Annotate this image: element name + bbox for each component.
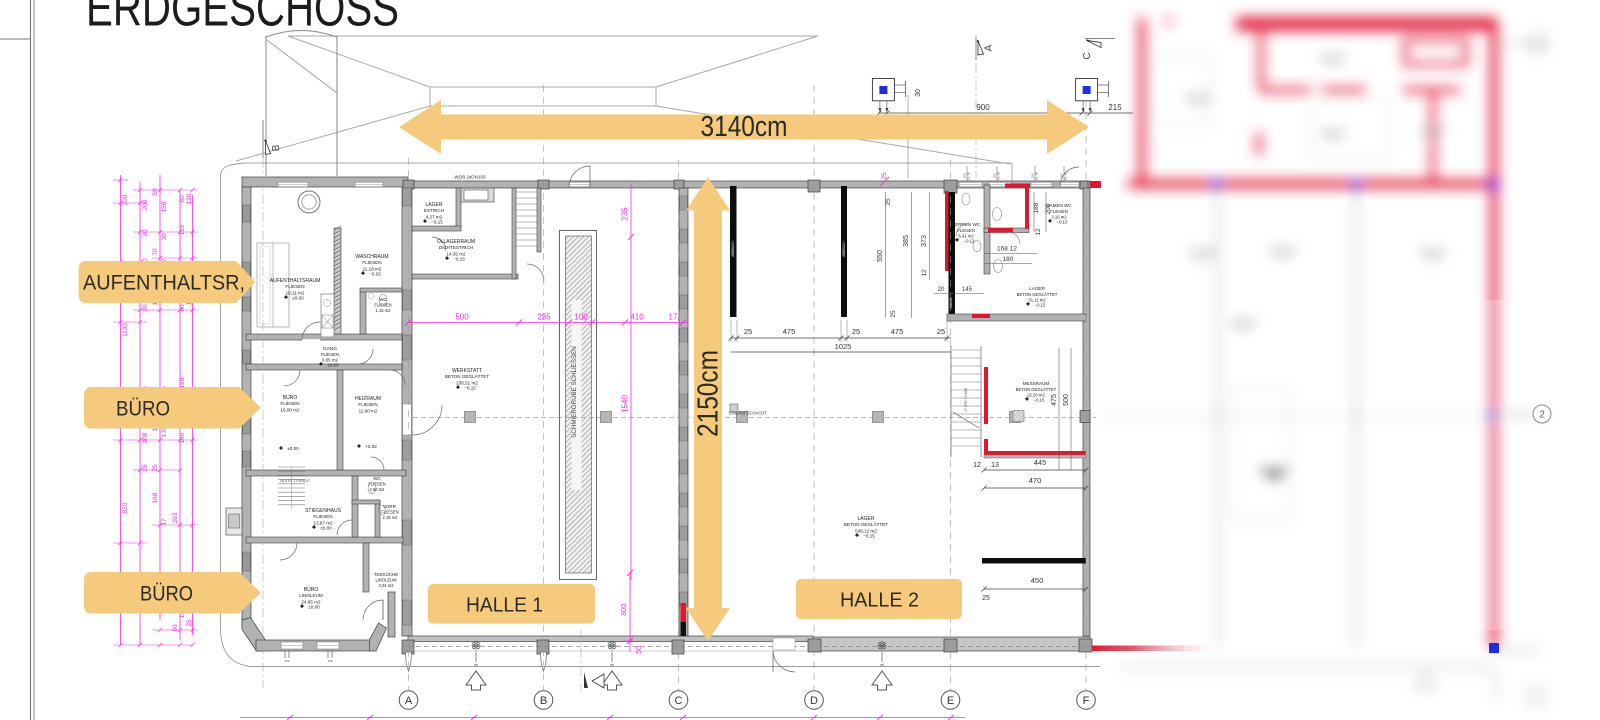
svg-text:470: 470 <box>1029 476 1042 485</box>
svg-text:385: 385 <box>903 235 910 247</box>
svg-text:STIEGENHAUS: STIEGENHAUS <box>305 508 342 514</box>
svg-text:BÜRO: BÜRO <box>304 586 319 593</box>
svg-text:12: 12 <box>921 269 928 277</box>
svg-text:+0,02: +0,02 <box>365 444 377 449</box>
svg-text:FLIESEN: FLIESEN <box>381 510 398 515</box>
svg-text:−0,13: −0,13 <box>964 238 975 243</box>
svg-text:1130: 1130 <box>122 323 129 337</box>
svg-text:3,04 m2: 3,04 m2 <box>379 583 395 588</box>
svg-text:BETON GEGLÄTTET: BETON GEGLÄTTET <box>1016 387 1057 392</box>
svg-text:150: 150 <box>161 201 168 212</box>
svg-text:FLIESEN: FLIESEN <box>285 284 304 289</box>
svg-text:A: A <box>984 44 995 51</box>
svg-text:16,00 m2: 16,00 m2 <box>280 407 300 412</box>
svg-text:WC: WC <box>379 297 387 302</box>
svg-text:E: E <box>947 695 954 707</box>
svg-text:25: 25 <box>186 619 193 627</box>
svg-text:HALLE 1: HALLE 1 <box>466 593 543 616</box>
svg-text:12: 12 <box>973 462 981 469</box>
svg-text:30: 30 <box>142 229 149 237</box>
svg-text:WC: WC <box>373 476 381 481</box>
svg-text:2150cm: 2150cm <box>693 350 725 437</box>
svg-text:OL 90: OL 90 <box>997 172 1001 180</box>
svg-text:FLIESEN: FLIESEN <box>362 260 381 265</box>
svg-text:70: 70 <box>152 248 159 256</box>
svg-text:500: 500 <box>1063 394 1070 406</box>
svg-text:1025: 1025 <box>835 342 852 351</box>
svg-text:FLIESEN: FLIESEN <box>1050 209 1068 214</box>
svg-text:308: 308 <box>142 432 149 443</box>
svg-text:EINLAUFSCHACHT: EINLAUFSCHACHT <box>729 411 767 416</box>
svg-text:12: 12 <box>1035 228 1042 236</box>
svg-text:LINOLEUM: LINOLEUM <box>375 578 397 583</box>
svg-text:17: 17 <box>161 518 168 526</box>
svg-text:150: 150 <box>284 659 289 663</box>
svg-text:FLIESEN: FLIESEN <box>280 401 299 406</box>
svg-text:60: 60 <box>172 624 179 632</box>
svg-text:ABBRUCH: ABBRUCH <box>842 241 846 257</box>
svg-text:DICHTESTRICH: DICHTESTRICH <box>439 245 473 250</box>
svg-text:17 STG 17,5/25: 17 STG 17,5/25 <box>964 388 968 412</box>
svg-text:VORR.: VORR. <box>383 504 397 509</box>
svg-text:80: 80 <box>179 195 186 203</box>
svg-text:445: 445 <box>1034 458 1047 467</box>
svg-text:BETON GEGLÄTTET: BETON GEGLÄTTET <box>445 373 490 379</box>
svg-text:3140cm: 3140cm <box>701 111 788 143</box>
svg-text:DAMEN WC: DAMEN WC <box>1046 203 1072 208</box>
svg-text:900: 900 <box>976 103 990 112</box>
svg-text:−0,15: −0,15 <box>464 386 476 391</box>
svg-text:300: 300 <box>619 604 628 617</box>
svg-text:BETON GEGLÄTTET: BETON GEGLÄTTET <box>1017 292 1058 297</box>
svg-text:235: 235 <box>621 207 630 221</box>
svg-text:OL 90: OL 90 <box>1035 172 1039 180</box>
svg-text:OL 90: OL 90 <box>967 172 971 180</box>
svg-text:25: 25 <box>142 464 149 472</box>
svg-text:820: 820 <box>122 502 129 513</box>
svg-text:200: 200 <box>142 199 149 210</box>
svg-text:263: 263 <box>172 512 179 523</box>
svg-text:215: 215 <box>1108 103 1122 112</box>
svg-text:25: 25 <box>982 595 990 602</box>
svg-text:50: 50 <box>152 188 159 196</box>
svg-text:60: 60 <box>179 304 186 312</box>
svg-text:B: B <box>271 144 282 151</box>
svg-text:373: 373 <box>921 235 928 247</box>
svg-text:410: 410 <box>630 313 644 322</box>
svg-text:25: 25 <box>890 310 897 318</box>
svg-text:±0,00: ±0,00 <box>287 446 299 451</box>
svg-text:150: 150 <box>327 659 332 663</box>
svg-text:30: 30 <box>142 304 149 312</box>
svg-text:SCHMIERGRUBE SCHLIESSEN: SCHMIERGRUBE SCHLIESSEN <box>571 346 578 437</box>
svg-text:WDB 2xDN100: WDB 2xDN100 <box>454 175 486 180</box>
svg-text:ERDGESCHOSS: ERDGESCHOSS <box>86 0 399 38</box>
svg-text:C: C <box>675 695 683 707</box>
svg-text:TEEKÜCHE: TEEKÜCHE <box>374 571 399 577</box>
svg-text:120: 120 <box>186 193 193 204</box>
svg-text:475: 475 <box>783 327 796 336</box>
svg-text:−0,02: −0,02 <box>369 272 381 277</box>
svg-text:235: 235 <box>537 313 551 322</box>
svg-text:168: 168 <box>152 492 159 503</box>
svg-text:50: 50 <box>636 646 643 654</box>
svg-text:ESTRICH: ESTRICH <box>424 208 444 213</box>
svg-text:2,18 m2: 2,18 m2 <box>383 515 399 520</box>
svg-text:BÜRO: BÜRO <box>283 394 298 401</box>
svg-text:−0,15: −0,15 <box>431 220 443 225</box>
svg-text:LAGER: LAGER <box>426 202 443 208</box>
svg-text:MESSRAUM: MESSRAUM <box>1023 381 1050 386</box>
svg-text:A: A <box>405 695 413 707</box>
svg-text:FLIESEN: FLIESEN <box>313 514 332 519</box>
svg-text:BÜRO: BÜRO <box>116 397 170 420</box>
svg-text:1,15 m2: 1,15 m2 <box>376 308 392 313</box>
svg-text:1540: 1540 <box>621 395 630 413</box>
svg-text:HERREN WC: HERREN WC <box>952 222 981 227</box>
svg-text:HEIZRAUM: HEIZRAUM <box>355 396 381 402</box>
svg-text:FLIESEN: FLIESEN <box>957 228 975 233</box>
svg-text:ÖLLAGERRAUM: ÖLLAGERRAUM <box>437 238 475 245</box>
svg-text:−0,13: −0,13 <box>1057 219 1068 224</box>
svg-text:145: 145 <box>962 287 973 293</box>
svg-text:30: 30 <box>915 89 922 97</box>
svg-text:OL 90: OL 90 <box>1064 172 1068 180</box>
svg-text:KAMIN: KAMIN <box>949 297 953 308</box>
svg-text:200: 200 <box>122 194 129 205</box>
svg-text:BÜRO: BÜRO <box>140 582 193 605</box>
svg-text:168 12: 168 12 <box>997 246 1017 253</box>
svg-text:475: 475 <box>1051 394 1058 406</box>
svg-text:17: 17 <box>669 313 678 322</box>
svg-text:±0,00: ±0,00 <box>328 362 340 367</box>
svg-text:25: 25 <box>744 327 752 336</box>
svg-text:FLIESEN: FLIESEN <box>358 402 377 407</box>
svg-text:LINOLEUM: LINOLEUM <box>299 593 323 598</box>
svg-text:WERKSTATT: WERKSTATT <box>452 368 482 374</box>
svg-text:25: 25 <box>881 172 888 180</box>
svg-text:B: B <box>540 695 547 707</box>
svg-text:20: 20 <box>938 287 945 293</box>
svg-text:2,60 m2: 2,60 m2 <box>370 487 386 492</box>
svg-text:F: F <box>1083 695 1090 707</box>
svg-text:±0,00: ±0,00 <box>320 526 332 531</box>
svg-text:30: 30 <box>161 233 168 241</box>
svg-text:115: 115 <box>179 224 186 235</box>
svg-text:±0.00: ±0.00 <box>308 605 320 610</box>
svg-text:LAGER: LAGER <box>1029 286 1045 291</box>
svg-text:FLIESEN: FLIESEN <box>374 303 391 308</box>
svg-text:FLIESEN: FLIESEN <box>321 352 339 357</box>
svg-text:AUFENTHALTSRAUM: AUFENTHALTSRAUM <box>270 278 320 284</box>
svg-text:LAGER: LAGER <box>858 516 875 522</box>
svg-text:13: 13 <box>991 462 999 469</box>
svg-text:16 STG 17,5/28,57: 16 STG 17,5/28,57 <box>280 479 310 483</box>
svg-text:25: 25 <box>885 198 892 206</box>
svg-text:25: 25 <box>937 327 945 336</box>
svg-text:D: D <box>810 695 818 707</box>
svg-text:BETON GEGLÄTTET: BETON GEGLÄTTET <box>844 521 889 527</box>
svg-text:HALLE 2: HALLE 2 <box>840 588 919 611</box>
svg-text:±0,00: ±0,00 <box>292 296 304 301</box>
svg-text:150: 150 <box>179 432 186 443</box>
svg-text:FLIESEN: FLIESEN <box>368 482 385 487</box>
svg-text:475: 475 <box>891 327 904 336</box>
svg-text:25: 25 <box>852 327 860 336</box>
svg-text:−0,15: −0,15 <box>1035 302 1046 307</box>
svg-text:WASCHRAUM: WASCHRAUM <box>355 254 388 260</box>
svg-text:450: 450 <box>1031 576 1044 585</box>
svg-text:−0,15: −0,15 <box>1034 397 1045 402</box>
svg-text:C: C <box>1082 52 1093 59</box>
svg-text:100: 100 <box>574 313 588 322</box>
svg-text:500: 500 <box>455 313 469 322</box>
svg-text:550: 550 <box>877 250 884 262</box>
svg-text:2: 2 <box>1539 410 1545 421</box>
svg-text:11,60 m2: 11,60 m2 <box>359 408 378 413</box>
svg-text:180: 180 <box>1003 256 1014 263</box>
svg-text:150: 150 <box>179 377 186 388</box>
svg-text:−0,15: −0,15 <box>453 257 465 262</box>
svg-text:25: 25 <box>152 464 159 472</box>
svg-text:AUFENTHALTSR,: AUFENTHALTSR, <box>83 272 245 295</box>
svg-text:−0,15: −0,15 <box>863 534 875 539</box>
svg-text:ABBRUCH: ABBRUCH <box>731 241 735 257</box>
